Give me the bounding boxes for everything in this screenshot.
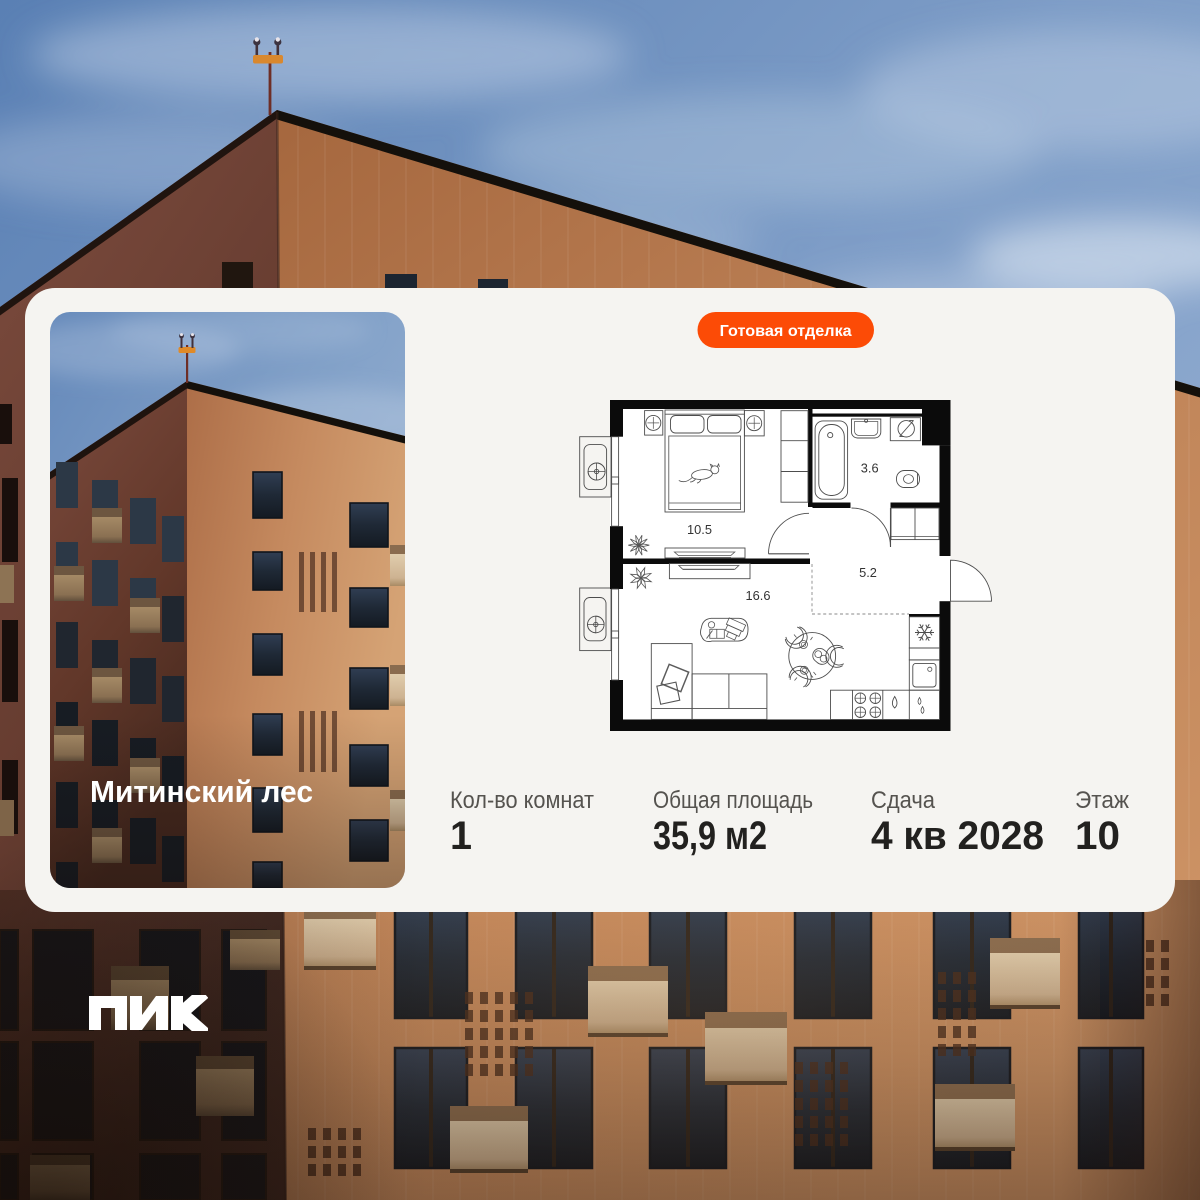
svg-text:10.5: 10.5 [687, 522, 712, 537]
svg-text:Сдача: Сдача [871, 787, 936, 814]
svg-text:Готовая отделка: Готовая отделка [720, 323, 852, 340]
svg-text:10: 10 [1075, 814, 1120, 858]
svg-text:1: 1 [450, 814, 472, 858]
svg-text:3.6: 3.6 [861, 461, 879, 476]
svg-text:Общая площадь: Общая площадь [653, 787, 813, 814]
svg-text:Митинский лес: Митинский лес [90, 774, 313, 809]
svg-text:4 кв 2028: 4 кв 2028 [871, 814, 1044, 858]
svg-text:Кол-во комнат: Кол-во комнат [450, 787, 594, 814]
svg-text:16.6: 16.6 [746, 588, 771, 603]
svg-text:5.2: 5.2 [859, 565, 877, 580]
svg-text:35,9 м2: 35,9 м2 [653, 814, 767, 858]
svg-text:Этаж: Этаж [1075, 787, 1129, 814]
